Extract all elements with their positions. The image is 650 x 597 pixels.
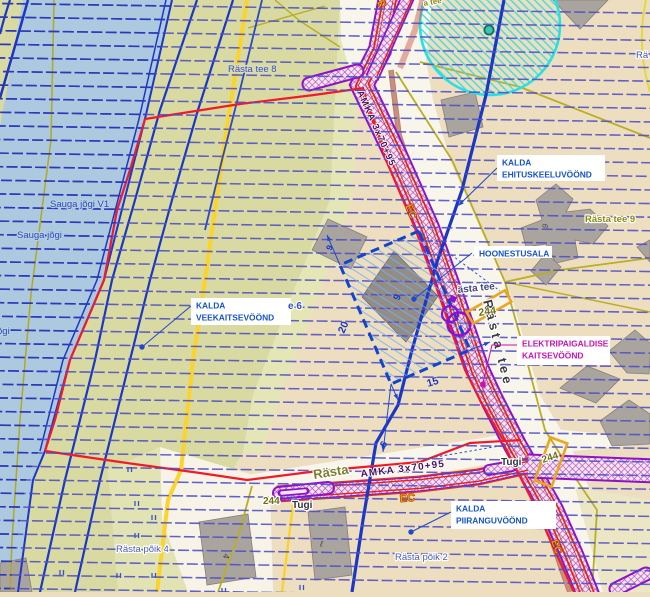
svg-text:EC: EC [399,492,415,505]
svg-text:Sauga jõgi V1: Sauga jõgi V1 [50,199,109,210]
svg-text:Tugi: Tugi [292,500,313,511]
svg-text:KAITSEVÖÖND: KAITSEVÖÖND [522,351,583,361]
svg-text:PIIRANGUVÖÖND: PIIRANGUVÖÖND [456,516,528,526]
svg-text:Rästa põik 4: Rästa põik 4 [116,544,169,555]
svg-text:Rästa põik 2: Rästa põik 2 [395,552,448,563]
svg-text:e 6: e 6 [288,301,302,312]
svg-text:KALDA: KALDA [456,504,485,514]
svg-text:KALDA: KALDA [502,158,531,168]
svg-text:VEEKAITSEVÖÖND: VEEKAITSEVÖÖND [196,313,274,323]
svg-text:Tugi: Tugi [501,457,522,468]
svg-text:244: 244 [478,305,497,319]
svg-text:HOONESTUSALA: HOONESTUSALA [479,249,549,259]
svg-text:ELEKTRIPAIGALDISE: ELEKTRIPAIGALDISE [522,339,609,349]
svg-text:KALDA: KALDA [196,301,225,311]
svg-text:Rä: Rä [636,50,649,61]
svg-text:õgi: õgi [0,326,10,337]
svg-text:ℓ: ℓ [319,539,323,549]
svg-text:EHITUSKEELUVÖÖND: EHITUSKEELUVÖÖND [502,170,592,180]
svg-text:Rästa tee 9: Rästa tee 9 [585,214,635,225]
svg-text:Sauga jõgi: Sauga jõgi [17,230,62,241]
svg-text:Rästa tee 8: Rästa tee 8 [228,64,277,75]
svg-text:244: 244 [263,496,280,507]
